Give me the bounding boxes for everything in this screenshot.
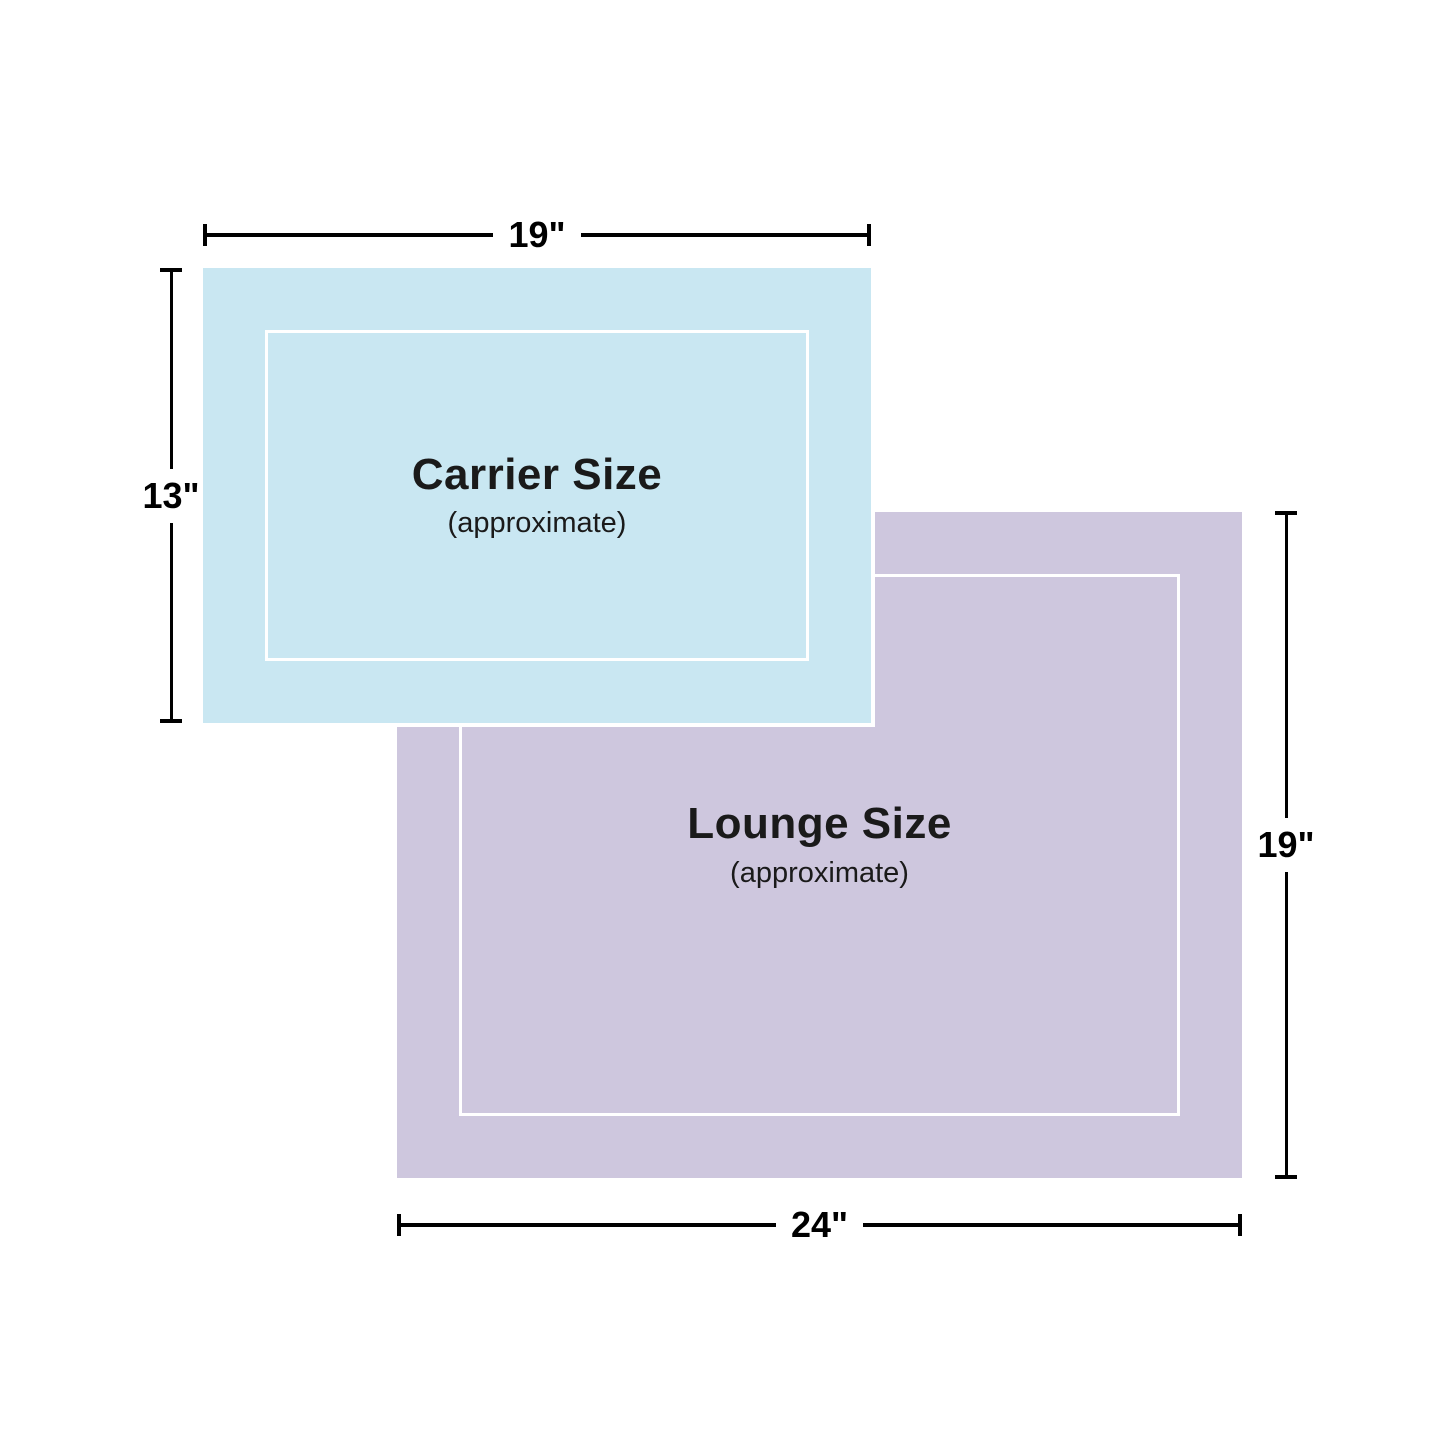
dimension-line-segment	[401, 1223, 776, 1227]
dimension-line-segment	[1285, 515, 1288, 818]
carrier-height-dimension: 13"	[141, 268, 201, 723]
lounge-width-dimension: 24"	[397, 1214, 1242, 1236]
carrier-title: Carrier Size	[412, 450, 663, 501]
carrier-width-label: 19"	[493, 217, 580, 253]
size-comparison-diagram: Lounge Size (approximate) Carrier Size (…	[0, 0, 1445, 1445]
dimension-end-cap	[1275, 1175, 1297, 1179]
carrier-subtitle: (approximate)	[448, 506, 627, 541]
carrier-size-rectangle: Carrier Size (approximate)	[203, 268, 871, 723]
carrier-width-dimension: 19"	[203, 224, 871, 246]
dimension-end-cap	[160, 719, 182, 723]
lounge-title: Lounge Size	[687, 799, 952, 850]
lounge-width-label: 24"	[776, 1207, 863, 1243]
dimension-end-cap	[867, 224, 871, 246]
lounge-height-label: 19"	[1257, 818, 1314, 872]
dimension-line-segment	[170, 523, 173, 720]
carrier-height-label: 13"	[142, 469, 199, 523]
dimension-line-segment	[581, 233, 867, 237]
lounge-subtitle: (approximate)	[730, 856, 909, 891]
dimension-line-segment	[170, 272, 173, 469]
lounge-height-dimension: 19"	[1256, 511, 1316, 1179]
dimension-line-segment	[1285, 872, 1288, 1175]
dimension-end-cap	[1238, 1214, 1242, 1236]
dimension-line-segment	[207, 233, 493, 237]
dimension-line-segment	[863, 1223, 1238, 1227]
